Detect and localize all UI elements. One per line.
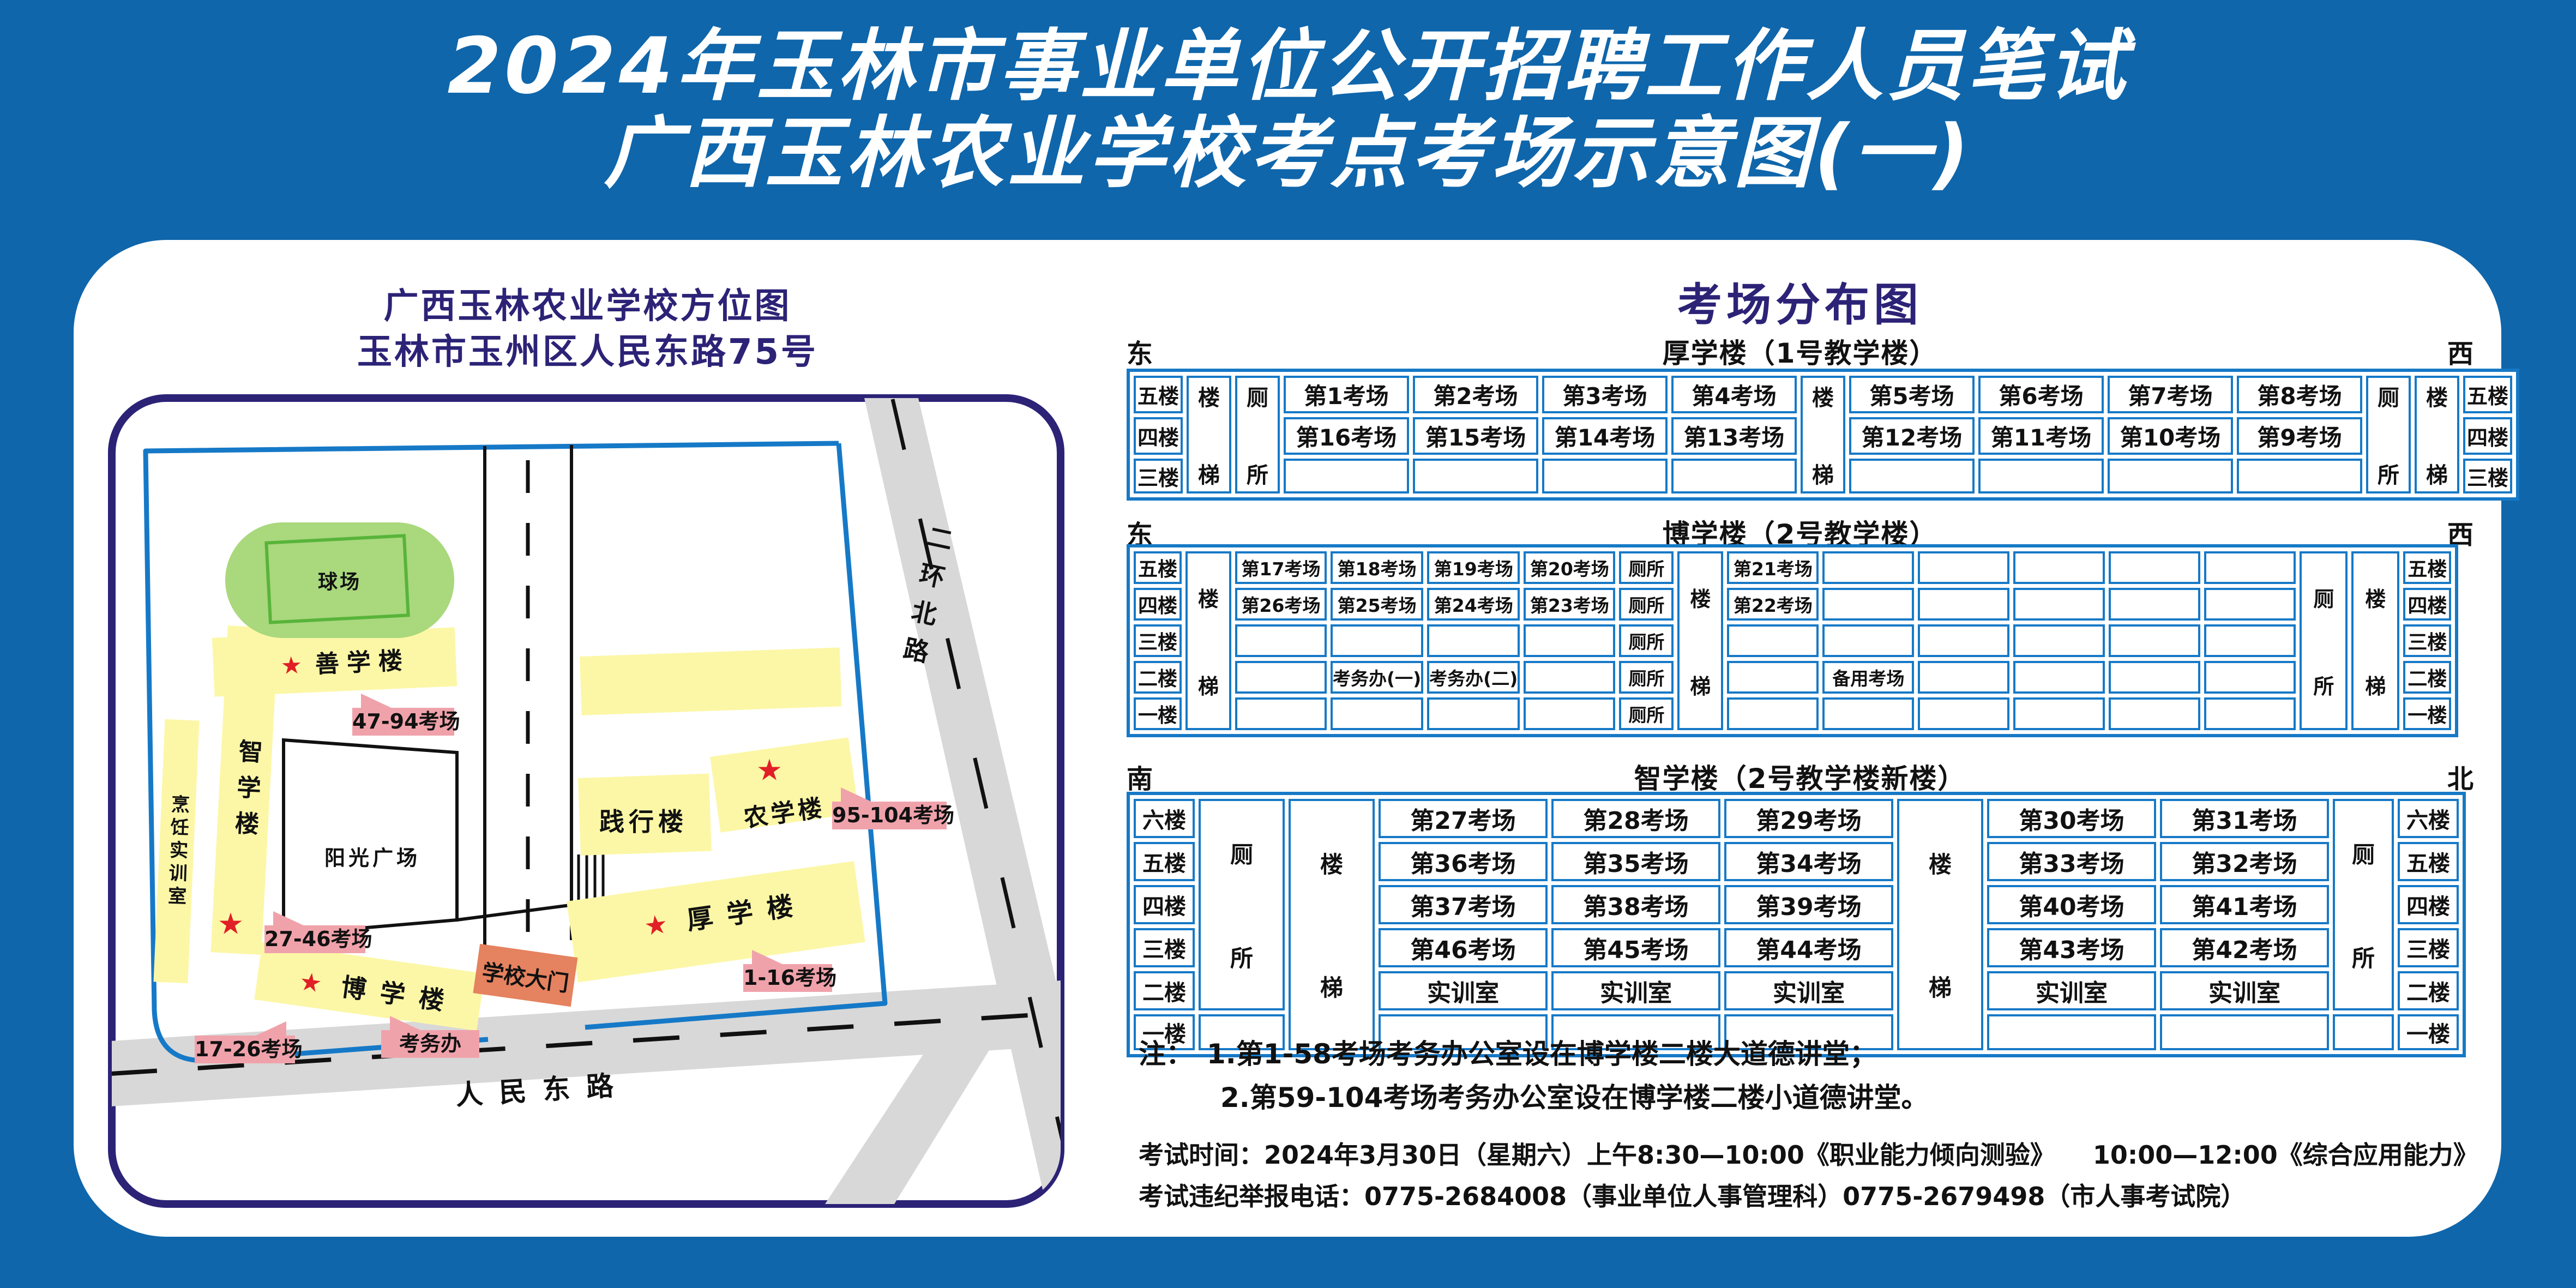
poster-title-line2: 广西玉林农业学校考点考场示意图(一) xyxy=(0,110,2576,197)
room-cell xyxy=(2109,588,2200,621)
floor-cell: 五楼 xyxy=(2403,551,2451,584)
floor-cell: 二楼 xyxy=(2398,971,2459,1010)
table3-header: 南 智学楼（2号教学楼新楼） 北 xyxy=(1127,757,2473,796)
room-cell xyxy=(1822,551,1914,584)
room-cell xyxy=(1978,459,2104,493)
room-cell xyxy=(1918,624,2009,657)
stair-toilet-cell: 厕所 xyxy=(2300,551,2348,730)
floor-cell: 一楼 xyxy=(1134,697,1182,730)
star-icon: ★ xyxy=(218,907,244,941)
table2-wrap: 五楼楼梯第17考场第18考场第19考场第20考场厕所楼梯第21考场厕所楼梯五楼四… xyxy=(1127,544,2458,737)
room-cell xyxy=(2333,1014,2394,1050)
vertical-label: 厕所 xyxy=(2368,378,2409,491)
table1-wrap: 五楼楼梯厕所第1考场第2考场第3考场第4考场楼梯第5考场第6考场第7考场第8考场… xyxy=(1127,369,2519,501)
room-cell xyxy=(2013,697,2105,730)
vertical-label: 楼梯 xyxy=(1680,553,1721,728)
floor-cell: 六楼 xyxy=(1134,799,1195,838)
room-cell: 考务办(二) xyxy=(1427,661,1520,694)
room-cell: 第39考场 xyxy=(1724,885,1893,924)
vertical-label: 楼梯 xyxy=(2354,553,2397,728)
stair-toilet-cell: 楼梯 xyxy=(1289,799,1375,1050)
floor-cell: 三楼 xyxy=(2463,459,2512,493)
campus-map: 球场 ★善学楼 智学楼 烹饪实训室 阳光广场 ★博学楼 学校大门 ★厚学楼 践行… xyxy=(106,388,1069,1214)
room-cell: 第36考场 xyxy=(1379,842,1548,881)
room-cell: 第24考场 xyxy=(1427,588,1520,621)
map-header-line1: 广西玉林农业学校方位图 xyxy=(106,284,1069,329)
room-cell xyxy=(2204,624,2296,657)
room-cell xyxy=(1671,459,1797,493)
floor-cell: 三楼 xyxy=(1134,459,1183,493)
room-cell: 第40考场 xyxy=(1987,885,2156,924)
room-cell xyxy=(2109,697,2200,730)
room-cell: 第46考场 xyxy=(1379,928,1548,967)
vertical-label: 楼梯 xyxy=(1188,553,1229,728)
room-cell: 厕所 xyxy=(1619,661,1674,694)
room-cell: 第16考场 xyxy=(1284,417,1409,455)
callout-kaowuban: 考务办 xyxy=(381,1030,479,1058)
room-cell xyxy=(1727,661,1819,694)
direction-label-right: 西 xyxy=(2408,332,2473,370)
room-cell xyxy=(1427,697,1520,730)
room-table-houxue: 五楼楼梯厕所第1考场第2考场第3考场第4考场楼梯第5考场第6考场第7考场第8考场… xyxy=(1130,372,2516,497)
distribution-title: 考场分布图 xyxy=(1127,268,2473,333)
exam-venue-poster: { "title": { "line1": "2024年玉林市事业单位公开招聘工… xyxy=(0,0,2576,1288)
room-cell xyxy=(2160,1014,2329,1050)
stair-toilet-cell: 楼梯 xyxy=(1801,376,1845,493)
vertical-label: 楼梯 xyxy=(1803,378,1843,491)
room-cell: 实训室 xyxy=(1987,971,2156,1010)
room-cell xyxy=(1822,588,1914,621)
floor-cell: 四楼 xyxy=(1134,885,1195,924)
label-cooking-room: 烹饪实训室 xyxy=(162,794,192,910)
report-phone-line: 考试违纪举报电话：0775-2684008（事业单位人事管理科）0775-267… xyxy=(1139,1177,2246,1213)
callout-boxue-rooms: 17-26考场 xyxy=(195,1036,295,1063)
room-cell: 第22考场 xyxy=(1727,588,1819,621)
room-cell xyxy=(1822,624,1914,657)
room-cell: 第29考场 xyxy=(1724,799,1893,838)
room-cell: 第4考场 xyxy=(1671,376,1797,413)
room-cell: 第42考场 xyxy=(2160,928,2329,967)
room-cell: 第35考场 xyxy=(1551,842,1720,881)
room-cell: 第21考场 xyxy=(1727,551,1819,584)
room-cell: 实训室 xyxy=(1379,971,1548,1010)
room-cell: 实训室 xyxy=(1551,971,1720,1010)
room-cell: 第20考场 xyxy=(1524,551,1615,584)
building-name: 智学楼（2号教学楼新楼） xyxy=(1192,757,2408,796)
stair-toilet-cell: 楼梯 xyxy=(1897,799,1983,1050)
vertical-label: 楼梯 xyxy=(1899,801,1981,1048)
room-cell: 实训室 xyxy=(2160,971,2329,1010)
room-cell xyxy=(1284,459,1409,493)
room-cell: 第3考场 xyxy=(1542,376,1668,413)
room-cell: 第15考场 xyxy=(1413,417,1538,455)
star-icon: ★ xyxy=(642,907,684,942)
room-cell: 第38考场 xyxy=(1551,885,1720,924)
table1-header: 东 厚学楼（1号教学楼） 西 xyxy=(1127,332,2473,371)
stair-toilet-cell: 厕所 xyxy=(1235,376,1280,493)
floor-cell: 一楼 xyxy=(2398,1014,2459,1050)
room-cell: 第11考场 xyxy=(1978,417,2104,455)
room-cell xyxy=(1524,661,1615,694)
room-cell: 第6考场 xyxy=(1978,376,2104,413)
floor-cell: 五楼 xyxy=(2463,376,2512,413)
room-cell: 第37考场 xyxy=(1379,885,1548,924)
room-cell: 考务办(一) xyxy=(1331,661,1423,694)
room-cell: 第28考场 xyxy=(1551,799,1720,838)
room-cell: 第32考场 xyxy=(2160,842,2329,881)
room-cell: 第45考场 xyxy=(1551,928,1720,967)
vertical-label: 厕所 xyxy=(2302,553,2345,728)
room-cell: 第18考场 xyxy=(1331,551,1423,584)
callout-zhixue-rooms: 27-46考场 xyxy=(264,925,365,953)
room-cell xyxy=(1235,661,1327,694)
room-cell xyxy=(2013,551,2105,584)
room-cell xyxy=(2109,551,2200,584)
stair-toilet-cell: 楼梯 xyxy=(2351,551,2399,730)
floor-cell: 三楼 xyxy=(1134,624,1182,657)
floor-cell: 四楼 xyxy=(1134,417,1183,455)
room-cell xyxy=(1542,459,1668,493)
room-cell: 厕所 xyxy=(1619,697,1674,730)
room-cell xyxy=(1331,624,1423,657)
floor-cell: 五楼 xyxy=(1134,551,1182,584)
room-cell xyxy=(2204,551,2296,584)
star-icon: ★ xyxy=(280,651,310,680)
stair-toilet-cell: 厕所 xyxy=(1199,799,1285,1010)
room-cell xyxy=(2013,661,2105,694)
table3-wrap: 六楼厕所楼梯第27考场第28考场第29考场楼梯第30考场第31考场厕所六楼五楼第… xyxy=(1127,792,2466,1057)
callout-nongxue-rooms: 95-104考场 xyxy=(832,802,947,829)
building-name: 厚学楼（1号教学楼） xyxy=(1192,332,2408,371)
room-cell: 第31考场 xyxy=(2160,799,2329,838)
floor-cell: 四楼 xyxy=(2463,417,2512,455)
room-cell xyxy=(2013,624,2105,657)
table-row: 六楼厕所楼梯第27考场第28考场第29考场楼梯第30考场第31考场厕所六楼 xyxy=(1134,799,2459,838)
floor-cell: 四楼 xyxy=(2398,885,2459,924)
floor-cell: 二楼 xyxy=(1134,661,1182,694)
label-plaza: 阳光广场 xyxy=(324,841,420,871)
stair-toilet-cell: 楼梯 xyxy=(1677,551,1723,730)
room-cell: 第26考场 xyxy=(1235,588,1327,621)
room-cell xyxy=(1727,697,1819,730)
room-cell xyxy=(1822,697,1914,730)
floor-cell: 六楼 xyxy=(2398,799,2459,838)
note-line2: 2.第59-104考场考务办公室设在博学楼二楼小道德讲堂。 xyxy=(1220,1076,1929,1115)
stair-toilet-cell: 楼梯 xyxy=(1187,376,1231,493)
room-cell xyxy=(1987,1014,2156,1050)
room-cell xyxy=(2013,588,2105,621)
room-cell: 第7考场 xyxy=(2108,376,2233,413)
vertical-label: 厕所 xyxy=(2335,801,2392,1008)
floor-cell: 五楼 xyxy=(2398,842,2459,881)
table-row: 五楼楼梯厕所第1考场第2考场第3考场第4考场楼梯第5考场第6考场第7考场第8考场… xyxy=(1134,376,2512,413)
room-cell: 第8考场 xyxy=(2237,376,2362,413)
room-cell: 第33考场 xyxy=(1987,842,2156,881)
room-cell: 厕所 xyxy=(1619,551,1674,584)
callout-shanxue-rooms: 47-94考场 xyxy=(352,708,454,736)
room-cell xyxy=(1727,624,1819,657)
room-cell xyxy=(1524,624,1615,657)
label-field: 球场 xyxy=(318,566,362,594)
vertical-label: 厕所 xyxy=(1201,801,1283,1008)
label-shanxue: ★善学楼 xyxy=(280,641,411,681)
room-cell xyxy=(1413,459,1538,493)
room-cell xyxy=(2109,624,2200,657)
room-cell xyxy=(2237,459,2362,493)
floor-cell: 二楼 xyxy=(2403,661,2451,694)
room-cell: 第23考场 xyxy=(1524,588,1615,621)
direction-label-right: 北 xyxy=(2408,757,2473,796)
floor-cell: 三楼 xyxy=(2403,624,2451,657)
floor-cell: 五楼 xyxy=(1134,842,1195,881)
room-cell xyxy=(2204,697,2296,730)
stair-toilet-cell: 厕所 xyxy=(2333,799,2394,1010)
callout-houxue-rooms: 1-16考场 xyxy=(743,964,832,992)
map-header-line2: 玉林市玉州区人民东路75号 xyxy=(106,329,1069,375)
room-cell: 第10考场 xyxy=(2108,417,2233,455)
plaza-outline xyxy=(284,740,457,935)
floor-cell: 五楼 xyxy=(1134,376,1183,413)
room-cell: 第41考场 xyxy=(2160,885,2329,924)
floor-cell: 三楼 xyxy=(2398,928,2459,967)
vertical-label: 楼梯 xyxy=(2417,378,2457,491)
stair-toilet-cell: 厕所 xyxy=(2366,376,2411,493)
room-cell: 第43考场 xyxy=(1987,928,2156,967)
map-header: 广西玉林农业学校方位图 玉林市玉州区人民东路75号 xyxy=(106,284,1069,375)
room-cell xyxy=(1524,697,1615,730)
vertical-label: 楼梯 xyxy=(1189,378,1229,491)
floor-cell: 二楼 xyxy=(1134,971,1195,1010)
room-cell xyxy=(1427,624,1520,657)
room-cell: 厕所 xyxy=(1619,588,1674,621)
floor-cell: 四楼 xyxy=(2403,588,2451,621)
building-unlabeled xyxy=(580,647,841,715)
room-cell xyxy=(2204,588,2296,621)
table-row: 二楼考务办(一)考务办(二)厕所备用考场二楼 xyxy=(1134,661,2451,694)
label-zhixue: 智学楼 xyxy=(226,738,266,847)
room-cell xyxy=(1918,661,2009,694)
room-cell: 第25考场 xyxy=(1331,588,1423,621)
room-cell xyxy=(2109,661,2200,694)
label-jianxing: 践行楼 xyxy=(599,802,688,838)
floor-cell: 四楼 xyxy=(1134,588,1182,621)
room-cell xyxy=(2108,459,2233,493)
star-icon: ★ xyxy=(756,753,783,787)
star-icon: ★ xyxy=(298,966,338,1001)
room-cell: 第17考场 xyxy=(1235,551,1327,584)
room-cell xyxy=(1331,697,1423,730)
room-cell: 第5考场 xyxy=(1849,376,1975,413)
room-cell: 第1考场 xyxy=(1284,376,1409,413)
room-cell xyxy=(1849,459,1975,493)
room-cell xyxy=(1918,588,2009,621)
room-cell: 第19考场 xyxy=(1427,551,1520,584)
vertical-label: 厕所 xyxy=(1237,378,1278,491)
table-row: 三楼厕所三楼 xyxy=(1134,624,2451,657)
room-cell: 第2考场 xyxy=(1413,376,1538,413)
table-row: 一楼厕所一楼 xyxy=(1134,697,2451,730)
table-row: 四楼第26考场第25考场第24考场第23考场厕所第22考场四楼 xyxy=(1134,588,2451,621)
room-cell: 第14考场 xyxy=(1542,417,1668,455)
room-cell: 备用考场 xyxy=(1822,661,1914,694)
floor-cell: 三楼 xyxy=(1134,928,1195,967)
room-cell xyxy=(1235,697,1327,730)
room-cell: 第30考场 xyxy=(1987,799,2156,838)
room-cell xyxy=(1918,551,2009,584)
note-line1: 注： 1.第1-58考场考务办公室设在博学楼二楼大道德讲堂； xyxy=(1139,1032,1877,1072)
stair-toilet-cell: 楼梯 xyxy=(1185,551,1231,730)
room-cell: 厕所 xyxy=(1619,624,1674,657)
direction-label-left: 东 xyxy=(1127,332,1192,370)
vertical-label: 楼梯 xyxy=(1291,801,1373,1048)
room-table-boxue: 五楼楼梯第17考场第18考场第19考场第20考场厕所楼梯第21考场厕所楼梯五楼四… xyxy=(1130,547,2455,734)
poster-title-line1: 2024年玉林市事业单位公开招聘工作人员笔试 xyxy=(0,23,2576,110)
table-row: 五楼楼梯第17考场第18考场第19考场第20考场厕所楼梯第21考场厕所楼梯五楼 xyxy=(1134,551,2451,584)
exam-time-line: 考试时间：2024年3月30日（星期六）上午8:30—10:00《职业能力倾向测… xyxy=(1139,1135,2478,1171)
room-table-zhixue: 六楼厕所楼梯第27考场第28考场第29考场楼梯第30考场第31考场厕所六楼五楼第… xyxy=(1130,795,2463,1054)
stair-toilet-cell: 楼梯 xyxy=(2415,376,2459,493)
direction-label-left: 南 xyxy=(1127,757,1192,796)
room-cell: 第34考场 xyxy=(1724,842,1893,881)
room-cell: 第9考场 xyxy=(2237,417,2362,455)
poster-title: 2024年玉林市事业单位公开招聘工作人员笔试 广西玉林农业学校考点考场示意图(一… xyxy=(0,23,2576,197)
room-cell xyxy=(1235,624,1327,657)
room-cell xyxy=(1918,697,2009,730)
room-cell: 实训室 xyxy=(1724,971,1893,1010)
room-cell xyxy=(2204,661,2296,694)
room-cell: 第12考场 xyxy=(1849,417,1975,455)
floor-cell: 一楼 xyxy=(2403,697,2451,730)
room-cell: 第44考场 xyxy=(1724,928,1893,967)
room-cell: 第13考场 xyxy=(1671,417,1797,455)
room-cell: 第27考场 xyxy=(1379,799,1548,838)
